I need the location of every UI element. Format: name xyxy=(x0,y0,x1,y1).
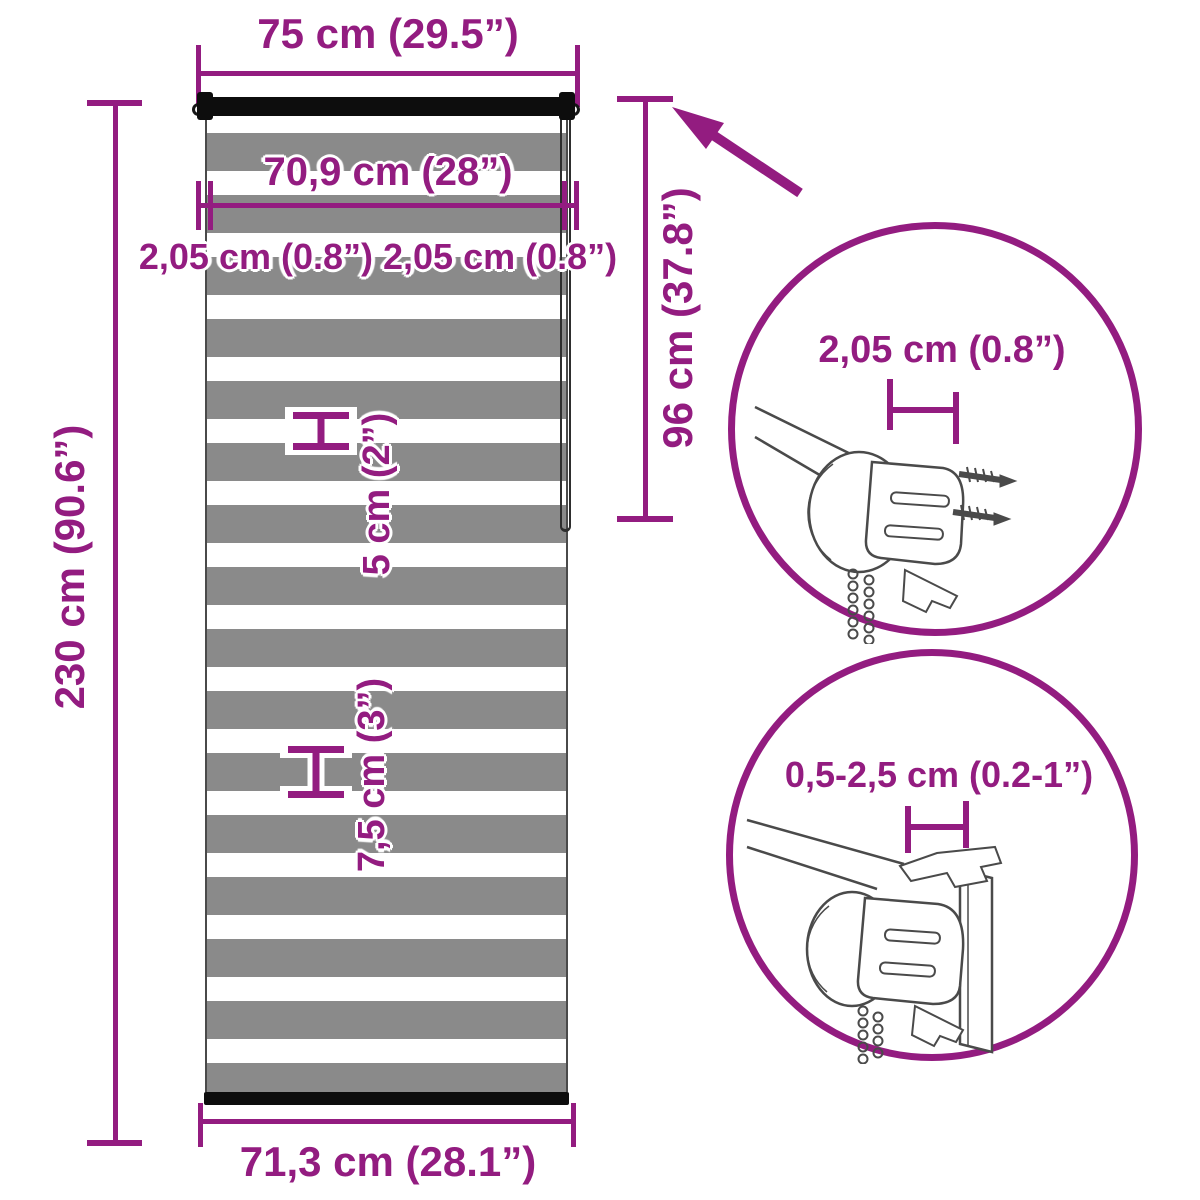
pointer-arrow xyxy=(655,90,825,215)
stripe-height-marker-large xyxy=(280,737,352,807)
clamp-illustration xyxy=(745,806,1085,1064)
dim-tick-fabric-outer-left xyxy=(196,181,201,230)
roller-tube xyxy=(205,97,567,116)
dim-cap-total-bottom xyxy=(87,1140,142,1146)
dim-line-roll-height xyxy=(643,97,648,521)
dim-line-top-width xyxy=(198,71,578,76)
dim-tick-fabric-inner-left xyxy=(208,181,213,230)
dim-label-top-width: 75 cm (29.5”) xyxy=(138,12,638,56)
stripe-height-marker-small xyxy=(285,403,357,459)
dim-tick-fabric-inner-right xyxy=(562,181,567,230)
bracket-gap-label: 2,05 cm (0.8”) xyxy=(775,331,1109,371)
bottom-bar xyxy=(204,1092,569,1105)
dim-line-bottom-width xyxy=(200,1119,574,1124)
dim-label-side-offsets: 2,05 cm (0.8”) 2,05 cm (0.8”) xyxy=(78,238,678,276)
stripe-label-solid: 7,5 cm (3”) xyxy=(349,635,395,915)
detail-circle-bracket: 2,05 cm (0.8”) xyxy=(728,222,1142,636)
dim-line-total-height xyxy=(113,103,118,1145)
dim-tick-fabric-outer-right xyxy=(574,181,579,230)
clamp-range-label: 0,5-2,5 cm (0.2-1”) xyxy=(761,756,1117,794)
roller-end-cap-right xyxy=(559,92,575,120)
roller-end-cap-left xyxy=(197,92,213,120)
stripe-label-sheer: 5 cm (2”) xyxy=(354,364,400,624)
dim-tick-top-right xyxy=(575,45,580,107)
dim-label-total-height: 230 cm (90.6”) xyxy=(45,387,95,747)
dim-label-bottom-width: 71,3 cm (28.1”) xyxy=(138,1140,638,1184)
dim-line-fabric-width xyxy=(198,203,578,208)
dim-cap-total-top xyxy=(87,100,142,106)
dim-cap-roll-bottom xyxy=(617,516,673,522)
detail-circle-clamp: 0,5-2,5 cm (0.2-1”) xyxy=(726,649,1138,1061)
bracket-illustration xyxy=(753,394,1083,644)
blind-dimension-diagram: 75 cm (29.5”) 70,9 cm (28”) 2,05 cm (0.8… xyxy=(0,0,1200,1200)
